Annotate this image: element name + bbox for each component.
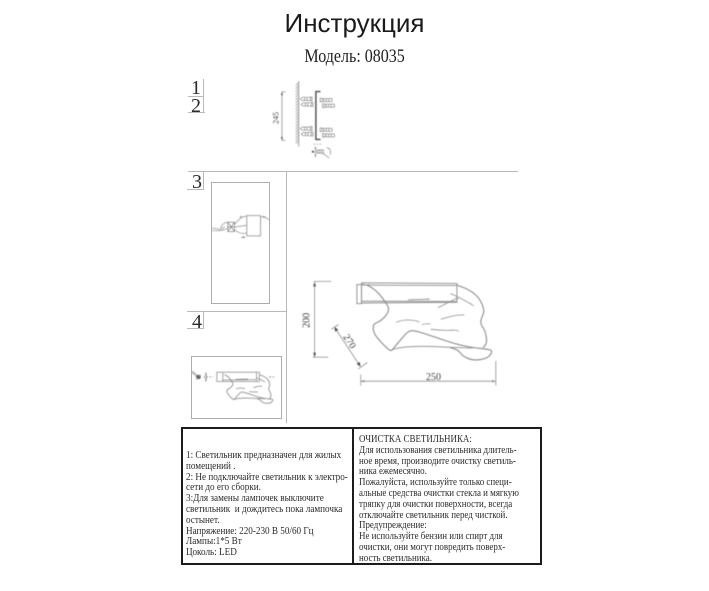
svg-text:245: 245 bbox=[272, 112, 281, 124]
svg-text:270: 270 bbox=[340, 332, 357, 351]
svg-text:250: 250 bbox=[426, 372, 441, 383]
svg-text:200: 200 bbox=[302, 313, 313, 328]
